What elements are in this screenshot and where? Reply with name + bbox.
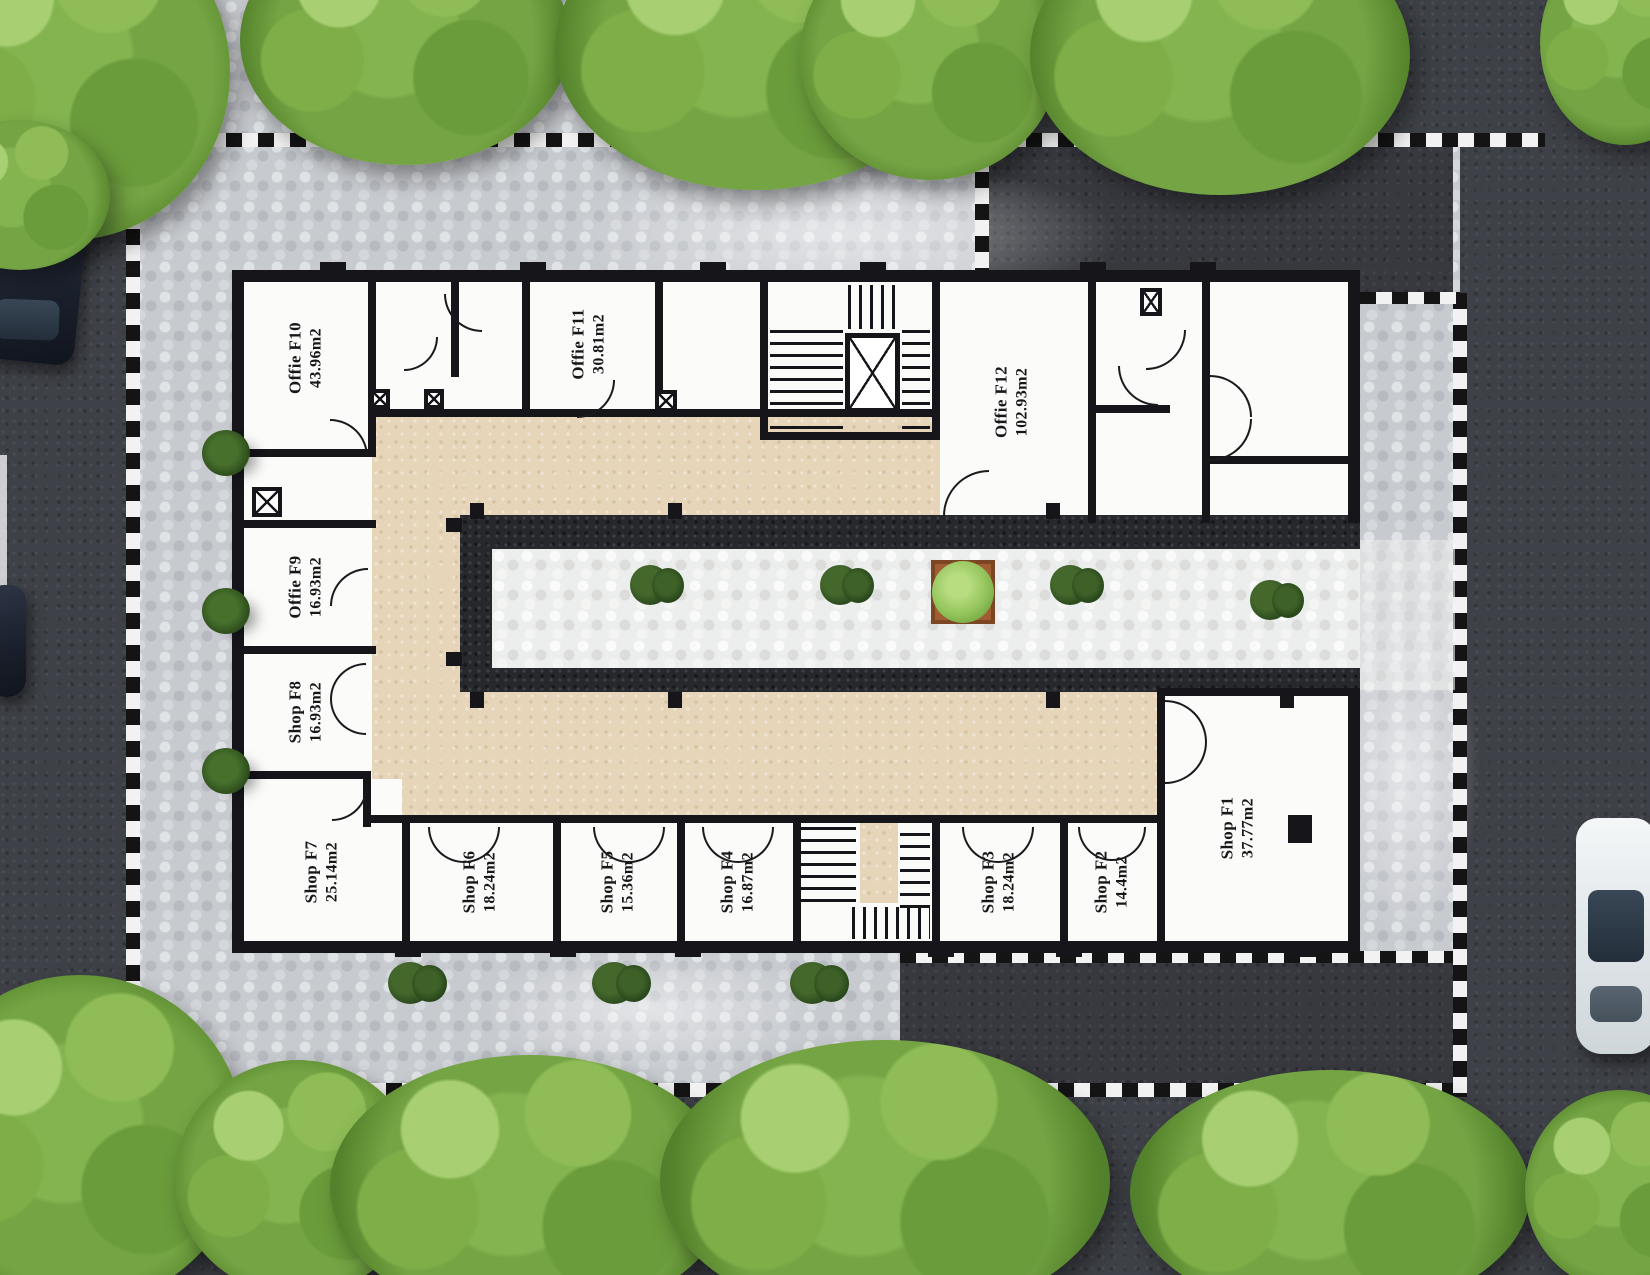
unit-label-f8: Shop F816.93m2 [285,681,328,744]
wall [932,823,940,941]
shrub [1050,565,1090,605]
courtyard-tiles-east [1360,540,1455,690]
unit-label-f1: Shop F137.77m2 [1217,797,1260,860]
wall-pier [860,262,886,274]
wall-pier [1056,941,1082,957]
unit-label-f5: Shop F515.36m2 [597,851,640,914]
corridor-bottom [372,692,1157,823]
shaft-icon [370,389,390,409]
shrub [630,565,670,605]
stair-flight-north-top [848,285,898,329]
shrub [388,962,432,1004]
stair-flight-south-bottom [852,907,930,939]
car-dark-left-edge [0,585,26,697]
wall [1348,270,1360,523]
wall [1157,692,1165,941]
floor-plan-canvas: Offie F1043.96m2 Offie F1130.81m2 Offie … [0,0,1650,1275]
plaza-highlight [480,950,820,1070]
wall [553,823,561,941]
palm-shrub [202,430,250,476]
unit-label-f2: Shop F214.4m2 [1091,851,1134,914]
frame-post [446,652,462,666]
car-white-right [1576,818,1650,1054]
palm-shrub [202,588,250,634]
wall [677,823,685,941]
wall [1060,823,1068,941]
frame-post [1280,692,1294,708]
column-f1 [1288,815,1312,843]
checkered-border-right [1453,293,1467,1097]
shaft-icon [252,487,282,517]
wall-pier [520,262,546,274]
wall [371,815,1165,823]
shrub [1250,580,1290,620]
wall [244,520,376,528]
wall [932,282,940,440]
corridor-stair-landing [860,823,898,903]
frame-post [1046,692,1060,708]
wall-pier [700,262,726,274]
wall [1210,456,1360,464]
wall-pier [1290,941,1316,957]
wall [244,646,376,654]
wall [1348,688,1360,953]
wall [402,823,410,941]
wall [1096,405,1170,413]
unit-label-f11: Offie F1130.81m2 [568,308,611,379]
stair-flight-south-left [801,827,856,907]
wall-pier [1190,262,1216,274]
elevator-shaft-icon [845,333,900,413]
stair-flight-south-right [900,833,930,915]
wall-pier [320,262,346,274]
unit-label-f12: Offie F12102.93m2 [991,366,1034,438]
shrub [790,962,834,1004]
unit-label-f6: Shop F618.24m2 [459,851,502,914]
wall [1202,282,1210,523]
wall [368,282,376,457]
frame-post [470,692,484,708]
unit-label-f10: Offie F1043.96m2 [285,322,328,394]
shaft-icon [655,390,677,412]
wall-pier [675,941,701,957]
unit-label-f4: Shop F416.87m2 [717,851,760,914]
car-rear-window [1590,986,1642,1022]
palm-shrub [202,748,250,794]
frame-post [446,518,462,532]
checkered-border-cutout-bottom [1360,292,1460,304]
wall-pier [928,941,954,957]
wall-pier [395,941,421,957]
wall [1157,688,1360,696]
frame-post [668,692,682,708]
car-windshield [1588,890,1644,962]
planter-box [931,560,995,624]
car-windshield [0,299,60,341]
courtyard-tiles [492,549,1360,668]
shrub [820,565,860,605]
wall-pier [1080,262,1106,274]
unit-label-f7: Shop F725.14m2 [301,841,344,904]
checkered-border-left [126,133,140,1090]
wall [793,823,801,941]
unit-label-f9: Offie F916.93m2 [285,555,328,618]
wall [522,282,530,417]
unit-label-f3: Shop F318.24m2 [978,851,1021,914]
wall [1088,282,1096,523]
shaft-icon [1140,288,1162,316]
wall [760,282,768,440]
frame-post [668,503,682,519]
frame-post [1046,503,1060,519]
wall [244,771,371,779]
wall [760,432,940,440]
wall-pier [550,941,576,957]
frame-post [470,503,484,519]
shrub [592,962,636,1004]
shaft-icon [424,389,444,409]
